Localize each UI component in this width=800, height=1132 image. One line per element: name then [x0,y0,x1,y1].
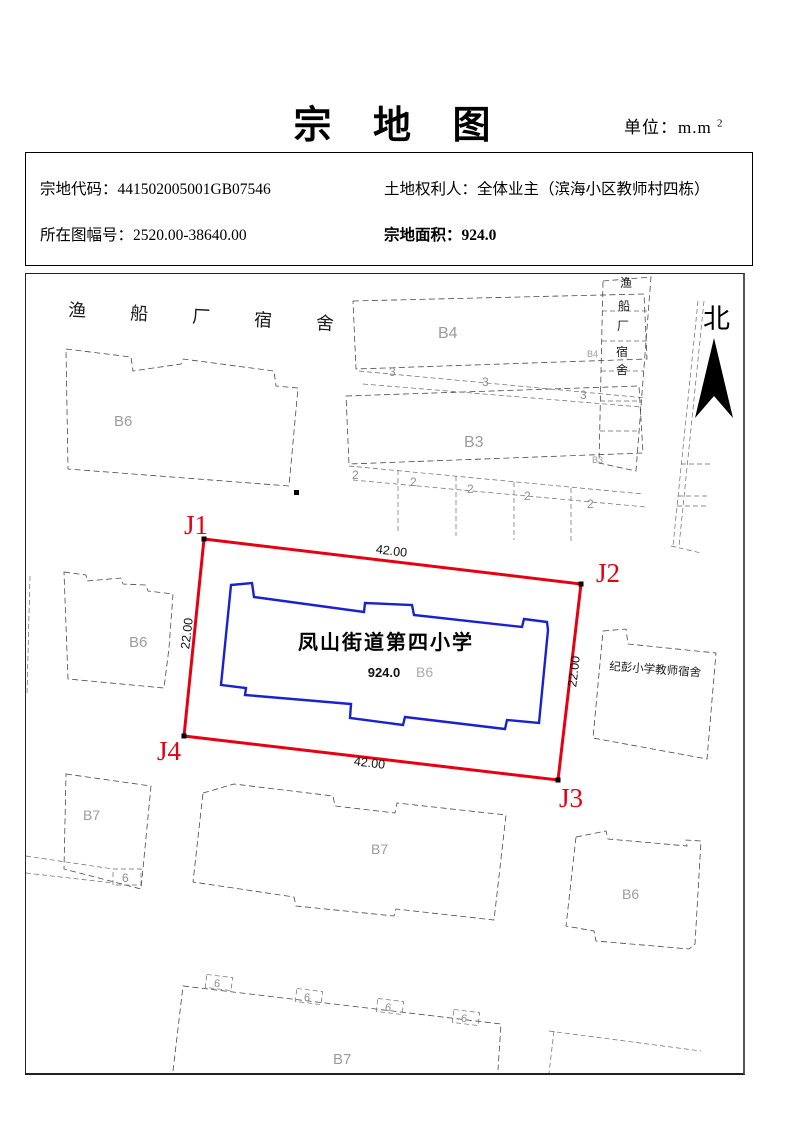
parcel-boundary-polygon [184,539,581,780]
entrance-number: 6 [460,1013,468,1026]
lane-hook [671,546,701,553]
side-dorm-char5: 舍 [616,362,628,377]
building-b7-west-outline [64,774,151,889]
corner-label-j4: J4 [157,736,182,766]
place-names: 渔船厂宿舍 渔 船 厂 宿 舍 纪彭小学教师宿舍 [68,276,702,679]
stair-number: 3 [389,365,396,379]
corner-label-j2: J2 [596,558,620,588]
parcel-boundary [184,539,581,780]
corner-point-j4 [182,734,187,739]
side-dorm-char4: 宿 [616,344,628,359]
entrance-number: 6 [122,871,129,885]
side-dorm-char3: 厂 [617,319,629,333]
dimension-bottom: 42.00 [353,754,386,772]
dimension-top: 42.00 [375,542,408,560]
corner-label-j1: J1 [184,510,208,540]
label-b3-small: B3 [592,455,603,465]
school-building-outline [221,583,548,729]
stair-number: 3 [482,375,489,389]
stair-number: 2 [524,489,531,503]
top-dorm-text: 渔船厂宿舍 [68,300,379,336]
b3-stair-row-line2 [353,480,646,507]
entrance-number: 6 [384,1002,392,1015]
building-b7-center-outline [193,784,506,920]
building-b6-west-outline [64,572,173,688]
lane-line-right [679,301,704,546]
building-east-outline [593,629,716,759]
label-b7-c: B7 [371,841,388,857]
corner-label-j3: J3 [559,783,583,813]
building-labels: B6 B6 B4 B4 B3 B3 B6 B7 B7 B7 3 3 3 2 2 … [83,325,639,1068]
cadastral-drawing: B6 B6 B4 B4 B3 B3 B6 B7 B7 B7 3 3 3 2 2 … [26,274,746,1076]
school-name: 凤山街道第四小学 [298,630,474,654]
dimension-right: 22.00 [565,655,583,688]
parcel-area-row: 宗地面积：924.0 [384,223,496,245]
north-label: 北 [703,304,730,334]
b3-stair-row-line1 [349,466,643,494]
label-b6-w: B6 [129,634,147,651]
b4-stair-row-line2 [363,384,641,407]
building-b4-outline [353,294,647,369]
rights-holder-value: 全体业主（滨海小区教师村四栋） [477,181,710,198]
label-b7-s: B7 [333,1051,351,1068]
unit-label: 单位：m.m 2 [624,113,723,138]
school-area-value: 924.0 [368,665,401,680]
map-sheet-value: 2520.00-38640.00 [133,227,247,244]
b4-stair-row-line1 [359,371,646,398]
parcel-code-label: 宗地代码： [40,181,118,198]
rights-holder-row: 土地权利人：全体业主（滨海小区教师村四栋） [384,177,710,199]
north-arrow-icon [695,338,733,418]
label-b4-small: B4 [587,349,598,359]
left-edge-fragment [27,576,30,694]
b7w-stub1 [26,856,113,869]
label-b7-w: B7 [83,807,100,823]
entrance-number: 6 [213,978,221,991]
rights-holder-label: 土地权利人： [384,181,477,198]
side-dorm-char2: 船 [618,299,630,313]
corner-point-j3 [556,778,561,783]
stair-number: 2 [352,468,359,482]
map-sheet-label: 所在图幅号： [40,227,133,244]
parcel-area-value: 924.0 [462,227,497,244]
parcel-code-value: 441502005001GB07546 [118,181,271,198]
lane-line-left [673,301,698,546]
survey-point [294,490,299,495]
school-block-code: B6 [416,664,433,680]
label-b6-nw: B6 [114,413,132,430]
stair-number: 2 [410,475,417,489]
school-building-labels: 凤山街道第四小学 924.0 B6 [298,630,474,680]
building-b6-northwest-outline [66,349,298,486]
side-dorm-char1: 渔 [620,276,632,290]
label-b3: B3 [464,434,484,451]
info-box: 宗地代码：441502005001GB07546 土地权利人：全体业主（滨海小区… [25,152,753,266]
east-building-name: 纪彭小学教师宿舍 [609,659,702,679]
north-indicator: 北 [695,304,733,418]
entrance-number: 6 [303,992,311,1005]
corner-point-j2 [579,582,584,587]
map-frame: B6 B6 B4 B4 B3 B3 B6 B7 B7 B7 3 3 3 2 2 … [25,273,745,1075]
parcel-map-page: 宗 地 图 单位：m.m 2 宗地代码：441502005001GB07546 … [0,0,800,1132]
parcel-code-row: 宗地代码：441502005001GB07546 [40,177,271,199]
unit-text: 单位：m.m [624,118,712,137]
label-b6-se: B6 [622,886,639,902]
stair-number: 2 [467,482,474,496]
fragment-line [549,1031,554,1073]
building-b3-outline [346,386,643,464]
parcel-area-label: 宗地面积： [384,227,462,244]
parcel-corner-points [182,537,584,783]
map-sheet-row: 所在图幅号：2520.00-38640.00 [40,223,247,245]
stair-number: 2 [587,497,594,511]
unit-superscript: 2 [717,117,724,129]
fragment-line [549,1031,701,1051]
label-b4: B4 [438,325,458,342]
stair-number: 3 [580,388,587,402]
